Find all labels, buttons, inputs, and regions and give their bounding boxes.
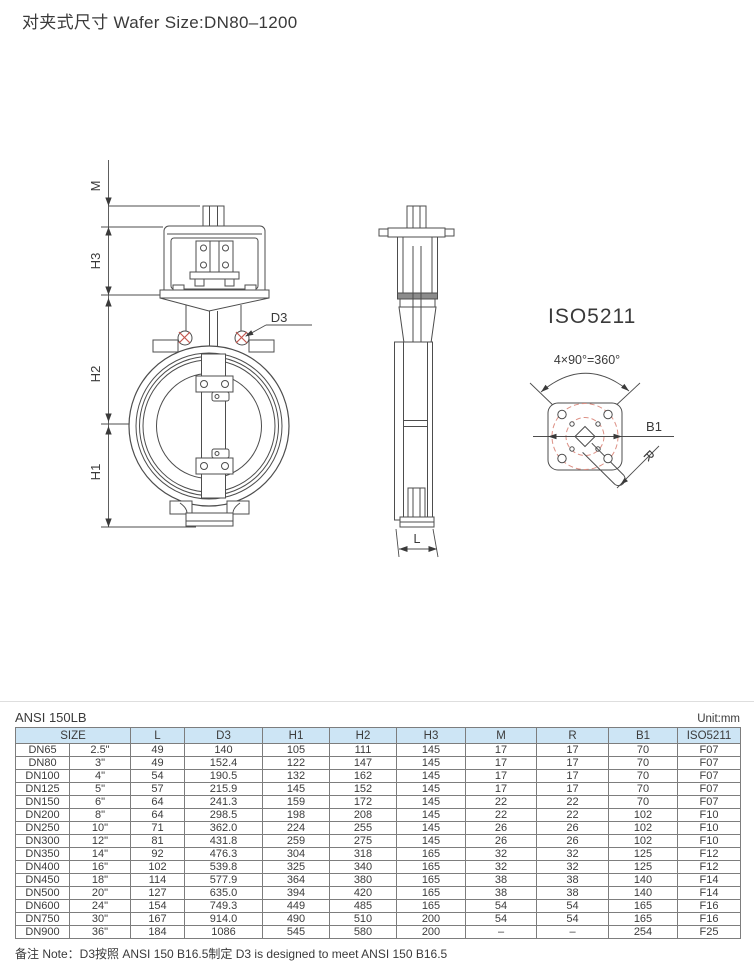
col-header-h3: H3 (397, 728, 466, 744)
table-cell: 17 (537, 783, 609, 796)
table-cell: 18" (70, 874, 131, 887)
dimension-table: SIZE L D3 H1 H2 H3 M R B1 ISO5211 DN652.… (15, 727, 741, 939)
table-cell: F16 (678, 900, 741, 913)
front-body (129, 340, 289, 526)
table-cell: 159 (263, 796, 330, 809)
table-row: DN1004"54190.5132162145171770F07 (16, 770, 741, 783)
table-cell: 172 (330, 796, 397, 809)
table-row: DN45018"114577.93643801653838140F14 (16, 874, 741, 887)
col-header-size: SIZE (16, 728, 131, 744)
table-cell: 70 (609, 757, 678, 770)
col-header-l: L (131, 728, 185, 744)
dim-label-m: M (88, 181, 103, 192)
unit-label: Unit:mm (697, 713, 740, 725)
table-row: DN1255"57215.9145152145171770F07 (16, 783, 741, 796)
table-row: DN803"49152.4122147145171770F07 (16, 757, 741, 770)
table-cell: 17 (466, 783, 537, 796)
table-cell: 102 (131, 861, 185, 874)
table-row: DN35014"92476.33043181653232125F12 (16, 848, 741, 861)
table-cell: F07 (678, 783, 741, 796)
r-dimension: R (617, 446, 659, 488)
table-cell: 81 (131, 835, 185, 848)
table-cell: 476.3 (185, 848, 263, 861)
table-cell: 145 (397, 822, 466, 835)
table-cell: 1086 (185, 926, 263, 939)
table-cell: 64 (131, 809, 185, 822)
table-cell: 5" (70, 783, 131, 796)
table-row: DN40016"102539.83253401653232125F12 (16, 861, 741, 874)
table-cell: 490 (263, 913, 330, 926)
table-cell: F07 (678, 744, 741, 757)
table-cell: 140 (609, 887, 678, 900)
angle-annotation: 4×90°=360° (554, 353, 620, 367)
table-cell: 70 (609, 744, 678, 757)
table-cell: 38 (537, 874, 609, 887)
table-cell: 224 (263, 822, 330, 835)
table-cell: 22 (537, 809, 609, 822)
table-cell: 36" (70, 926, 131, 939)
table-cell: F12 (678, 861, 741, 874)
table-cell: – (537, 926, 609, 939)
table-cell: 54 (537, 913, 609, 926)
table-cell: 49 (131, 744, 185, 757)
table-cell: 122 (263, 757, 330, 770)
table-cell: 57 (131, 783, 185, 796)
footnote: 备注 Note：D3按照 ANSI 150 B16.5制定 D3 is desi… (15, 945, 740, 962)
table-cell: DN600 (16, 900, 70, 913)
table-cell: F16 (678, 913, 741, 926)
table-cell: 190.5 (185, 770, 263, 783)
table-cell: 125 (609, 861, 678, 874)
table-cell: DN65 (16, 744, 70, 757)
d3-callout: D3 (245, 310, 312, 337)
table-cell: 70 (609, 783, 678, 796)
col-header-b1: B1 (609, 728, 678, 744)
table-cell: 580 (330, 926, 397, 939)
table-cell: F25 (678, 926, 741, 939)
table-cell: DN100 (16, 770, 70, 783)
table-cell: 2.5" (70, 744, 131, 757)
table-cell: 152 (330, 783, 397, 796)
table-cell: 22 (466, 796, 537, 809)
table-row: DN25010"71362.02242551452626102F10 (16, 822, 741, 835)
table-cell: 200 (397, 913, 466, 926)
table-cell: 184 (131, 926, 185, 939)
dim-label-b1: B1 (646, 419, 662, 434)
table-cell: 154 (131, 900, 185, 913)
table-cell: 70 (609, 796, 678, 809)
table-cell: 38 (466, 887, 537, 900)
table-cell: 318 (330, 848, 397, 861)
table-cell: 165 (397, 874, 466, 887)
col-header-m: M (466, 728, 537, 744)
table-cell: 125 (609, 848, 678, 861)
table-cell: 70 (609, 770, 678, 783)
front-view: M H3 H2 H1 (88, 160, 312, 527)
table-cell: 364 (263, 874, 330, 887)
table-row: DN60024"154749.34494851655454165F16 (16, 900, 741, 913)
table-cell: 545 (263, 926, 330, 939)
table-row: DN30012"81431.82592751452626102F10 (16, 835, 741, 848)
table-cell: 167 (131, 913, 185, 926)
table-cell: F10 (678, 835, 741, 848)
table-cell: 102 (609, 822, 678, 835)
table-cell: 38 (466, 874, 537, 887)
table-cell: 102 (609, 835, 678, 848)
table-cell: 54 (131, 770, 185, 783)
table-cell: 17 (466, 744, 537, 757)
table-cell: 145 (397, 757, 466, 770)
dim-label-h3: H3 (88, 253, 103, 270)
table-header-row: SIZE L D3 H1 H2 H3 M R B1 ISO5211 (16, 728, 741, 744)
table-cell: 26 (466, 835, 537, 848)
table-cell: 165 (609, 900, 678, 913)
table-cell: DN750 (16, 913, 70, 926)
table-cell: 32 (466, 848, 537, 861)
table-cell: 147 (330, 757, 397, 770)
table-cell: 165 (397, 848, 466, 861)
front-actuator-box (160, 206, 269, 298)
table-cell: 12" (70, 835, 131, 848)
table-cell: 200 (397, 926, 466, 939)
iso5211-view: ISO5211 4×90°=360° (530, 305, 674, 488)
table-cell: F07 (678, 770, 741, 783)
table-cell: DN500 (16, 887, 70, 900)
table-row: DN1506"64241.3159172145222270F07 (16, 796, 741, 809)
table-cell: 275 (330, 835, 397, 848)
table-cell: 254 (609, 926, 678, 939)
table-cell: 102 (609, 809, 678, 822)
col-header-h2: H2 (330, 728, 397, 744)
table-cell: 304 (263, 848, 330, 861)
dim-label-d3: D3 (271, 310, 288, 325)
table-cell: 17 (466, 757, 537, 770)
table-cell: 215.9 (185, 783, 263, 796)
table-cell: 17 (466, 770, 537, 783)
table-row: DN75030"167914.04905102005454165F16 (16, 913, 741, 926)
table-cell: 325 (263, 861, 330, 874)
table-cell: 140 (185, 744, 263, 757)
table-cell: 111 (330, 744, 397, 757)
table-cell: 92 (131, 848, 185, 861)
table-cell: 3" (70, 757, 131, 770)
table-row: DN2008"64298.51982081452222102F10 (16, 809, 741, 822)
table-cell: 749.3 (185, 900, 263, 913)
table-cell: DN125 (16, 783, 70, 796)
table-cell: 362.0 (185, 822, 263, 835)
table-cell: 32 (537, 861, 609, 874)
table-cell: 165 (397, 900, 466, 913)
dim-label-l: L (414, 532, 421, 546)
table-row: DN652.5"49140105111145171770F07 (16, 744, 741, 757)
table-cell: 17 (537, 770, 609, 783)
table-cell: 54 (466, 913, 537, 926)
table-cell: 431.8 (185, 835, 263, 848)
table-cell: 38 (537, 887, 609, 900)
table-cell: 54 (537, 900, 609, 913)
table-cell: DN900 (16, 926, 70, 939)
table-cell: F10 (678, 822, 741, 835)
table-cell: 145 (397, 744, 466, 757)
table-cell: F12 (678, 848, 741, 861)
table-cell: 17 (537, 757, 609, 770)
table-cell: DN250 (16, 822, 70, 835)
col-header-d3: D3 (185, 728, 263, 744)
valve-technical-drawing: M H3 H2 H1 (0, 0, 754, 700)
table-cell: 8" (70, 809, 131, 822)
table-cell: 10" (70, 822, 131, 835)
dim-label-h2: H2 (88, 366, 103, 383)
table-row: DN50020"127635.03944201653838140F14 (16, 887, 741, 900)
table-cell: 340 (330, 861, 397, 874)
table-cell: 4" (70, 770, 131, 783)
table-cell: F07 (678, 757, 741, 770)
table-cell: DN300 (16, 835, 70, 848)
table-cell: 577.9 (185, 874, 263, 887)
table-cell: 259 (263, 835, 330, 848)
table-cell: DN350 (16, 848, 70, 861)
table-cell: 26 (537, 822, 609, 835)
table-cell: 145 (397, 783, 466, 796)
table-cell: 255 (330, 822, 397, 835)
table-cell: 165 (397, 861, 466, 874)
table-cell: 380 (330, 874, 397, 887)
table-cell: 22 (537, 796, 609, 809)
table-cell: 145 (397, 809, 466, 822)
table-cell: 26 (537, 835, 609, 848)
table-cell: 49 (131, 757, 185, 770)
table-cell: 132 (263, 770, 330, 783)
table-cell: 162 (330, 770, 397, 783)
table-cell: 485 (330, 900, 397, 913)
dimension-table-section: ANSI 150LB Unit:mm SIZE L D3 H1 H2 H3 M … (15, 700, 740, 962)
col-header-r: R (537, 728, 609, 744)
table-cell: 145 (397, 835, 466, 848)
table-cell: 449 (263, 900, 330, 913)
table-cell: 914.0 (185, 913, 263, 926)
table-cell: 64 (131, 796, 185, 809)
dim-label-h1: H1 (88, 464, 103, 481)
table-cell: 16" (70, 861, 131, 874)
table-cell: 6" (70, 796, 131, 809)
table-cell: 165 (397, 887, 466, 900)
col-header-h1: H1 (263, 728, 330, 744)
table-cell: 20" (70, 887, 131, 900)
table-cell: 241.3 (185, 796, 263, 809)
table-cell: 394 (263, 887, 330, 900)
table-cell: 420 (330, 887, 397, 900)
table-cell: 145 (397, 796, 466, 809)
table-cell: 298.5 (185, 809, 263, 822)
table-cell: 127 (131, 887, 185, 900)
table-cell: 140 (609, 874, 678, 887)
table-cell: F10 (678, 809, 741, 822)
table-cell: 54 (466, 900, 537, 913)
table-cell: 14" (70, 848, 131, 861)
l-dimension: L (396, 529, 438, 557)
table-cell: 32 (466, 861, 537, 874)
table-cell: F14 (678, 887, 741, 900)
table-cell: 539.8 (185, 861, 263, 874)
table-body: DN652.5"49140105111145171770F07DN803"491… (16, 744, 741, 939)
table-cell: DN400 (16, 861, 70, 874)
table-cell: 165 (609, 913, 678, 926)
table-cell: 198 (263, 809, 330, 822)
table-cell: DN80 (16, 757, 70, 770)
table-cell: 114 (131, 874, 185, 887)
table-row: DN90036"1841086545580200––254F25 (16, 926, 741, 939)
table-cell: DN200 (16, 809, 70, 822)
table-cell: – (466, 926, 537, 939)
table-cell: F07 (678, 796, 741, 809)
table-cell: 635.0 (185, 887, 263, 900)
table-cell: 22 (466, 809, 537, 822)
table-cell: DN450 (16, 874, 70, 887)
table-cell: 208 (330, 809, 397, 822)
table-cell: 71 (131, 822, 185, 835)
table-cell: 145 (397, 770, 466, 783)
table-cell: 145 (263, 783, 330, 796)
table-cell: 17 (537, 744, 609, 757)
table-cell: 32 (537, 848, 609, 861)
side-view: L (379, 206, 454, 557)
table-cell: DN150 (16, 796, 70, 809)
iso5211-title: ISO5211 (548, 305, 636, 328)
table-cell: 105 (263, 744, 330, 757)
col-header-iso5211: ISO5211 (678, 728, 741, 744)
pressure-class-label: ANSI 150LB (15, 710, 87, 725)
table-cell: F14 (678, 874, 741, 887)
table-cell: 26 (466, 822, 537, 835)
table-cell: 510 (330, 913, 397, 926)
table-cell: 24" (70, 900, 131, 913)
table-cell: 152.4 (185, 757, 263, 770)
table-cell: 30" (70, 913, 131, 926)
